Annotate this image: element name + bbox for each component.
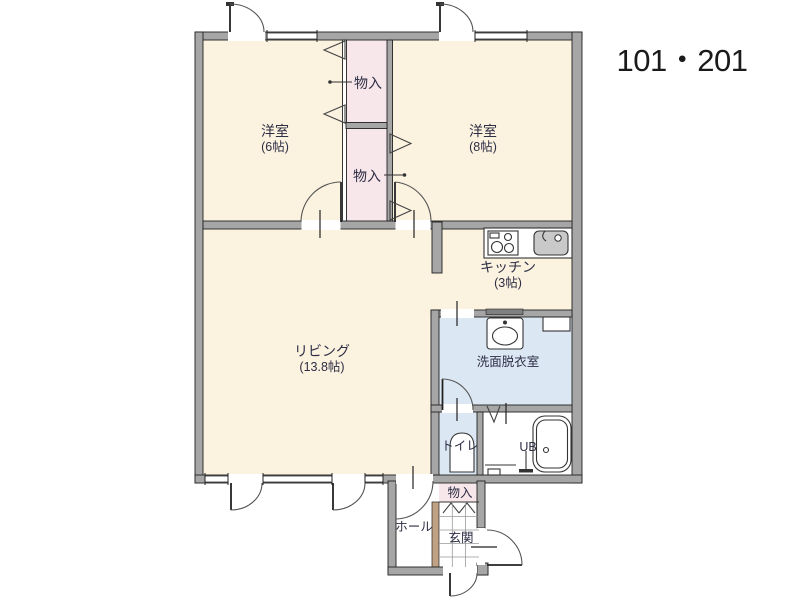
closet-right-wall (387, 40, 393, 221)
floorplan-drawing: 101・201 洋室 (6帖) 洋室 (8帖) 物入 物入 キッチン (3帖) … (0, 0, 800, 600)
door-gap-porch (443, 566, 477, 576)
washroom-label: 洗面脱衣室 (477, 354, 540, 369)
door-gap-hall (396, 474, 433, 484)
door-porch (450, 573, 477, 596)
bedroom6-size: (6帖) (261, 139, 289, 154)
kitchen-counter (484, 228, 572, 258)
kitchen-label: キッチン (480, 259, 536, 275)
entrance-step-strip (432, 502, 439, 567)
entrance-label: 玄関 (448, 530, 473, 545)
hall-label: ホール (395, 520, 433, 534)
door-gap-bedroom6-living (302, 220, 341, 230)
living-label: リビング (294, 343, 350, 359)
bedroom8-label: 洋室 (469, 123, 497, 139)
window-living-3 (365, 476, 383, 482)
door-gap-bedroom8-living (396, 220, 431, 230)
washroom-left-wall (431, 310, 439, 475)
bathtub-icon (533, 416, 571, 472)
window-bedroom8 (475, 33, 527, 39)
window-living-1 (205, 476, 228, 482)
bedroom6-label: 洋室 (261, 123, 289, 139)
window-bedroom6 (267, 33, 317, 39)
floorplan-page: 101・201 洋室 (6帖) 洋室 (8帖) 物入 物入 キッチン (3帖) … (0, 0, 800, 600)
closet-mid-wall (346, 123, 387, 129)
closet-left-partition (343, 40, 347, 221)
bedroom8-size: (8帖) (469, 139, 497, 154)
wall-left (195, 32, 203, 483)
door-living-exterior-2 (333, 483, 365, 510)
door-bedroom6-exterior (226, 2, 264, 32)
entrance-right-wall (477, 481, 485, 528)
door-gap-bedroom8-top (439, 31, 475, 41)
bath-label: UB (519, 440, 536, 454)
door-gap-living-bottom-1 (228, 474, 263, 484)
washroom-vent-band (486, 309, 523, 315)
washbasin-icon (487, 318, 523, 349)
window-living-2 (263, 476, 332, 482)
living-size: (13.8帖) (299, 359, 344, 374)
sink-icon (534, 231, 568, 255)
door-bedroom8-exterior (436, 2, 473, 32)
kitchen-size: (3帖) (494, 275, 522, 290)
door-living-exterior-1 (231, 483, 262, 510)
washroom-shelf (543, 317, 570, 331)
door-gap-bedroom6-top (228, 31, 265, 41)
plan-title: 101・201 (617, 43, 748, 78)
toilet-label: トイレ (441, 439, 479, 453)
kitchen-stub-wall (432, 222, 442, 273)
closet-upper-label: 物入 (354, 75, 382, 91)
entrance-closet-label: 物入 (447, 486, 473, 500)
closet-lower-label: 物入 (353, 168, 381, 184)
stove-icon (488, 231, 518, 255)
door-gap-living-bottom-2 (332, 474, 365, 484)
wall-right (572, 32, 582, 483)
